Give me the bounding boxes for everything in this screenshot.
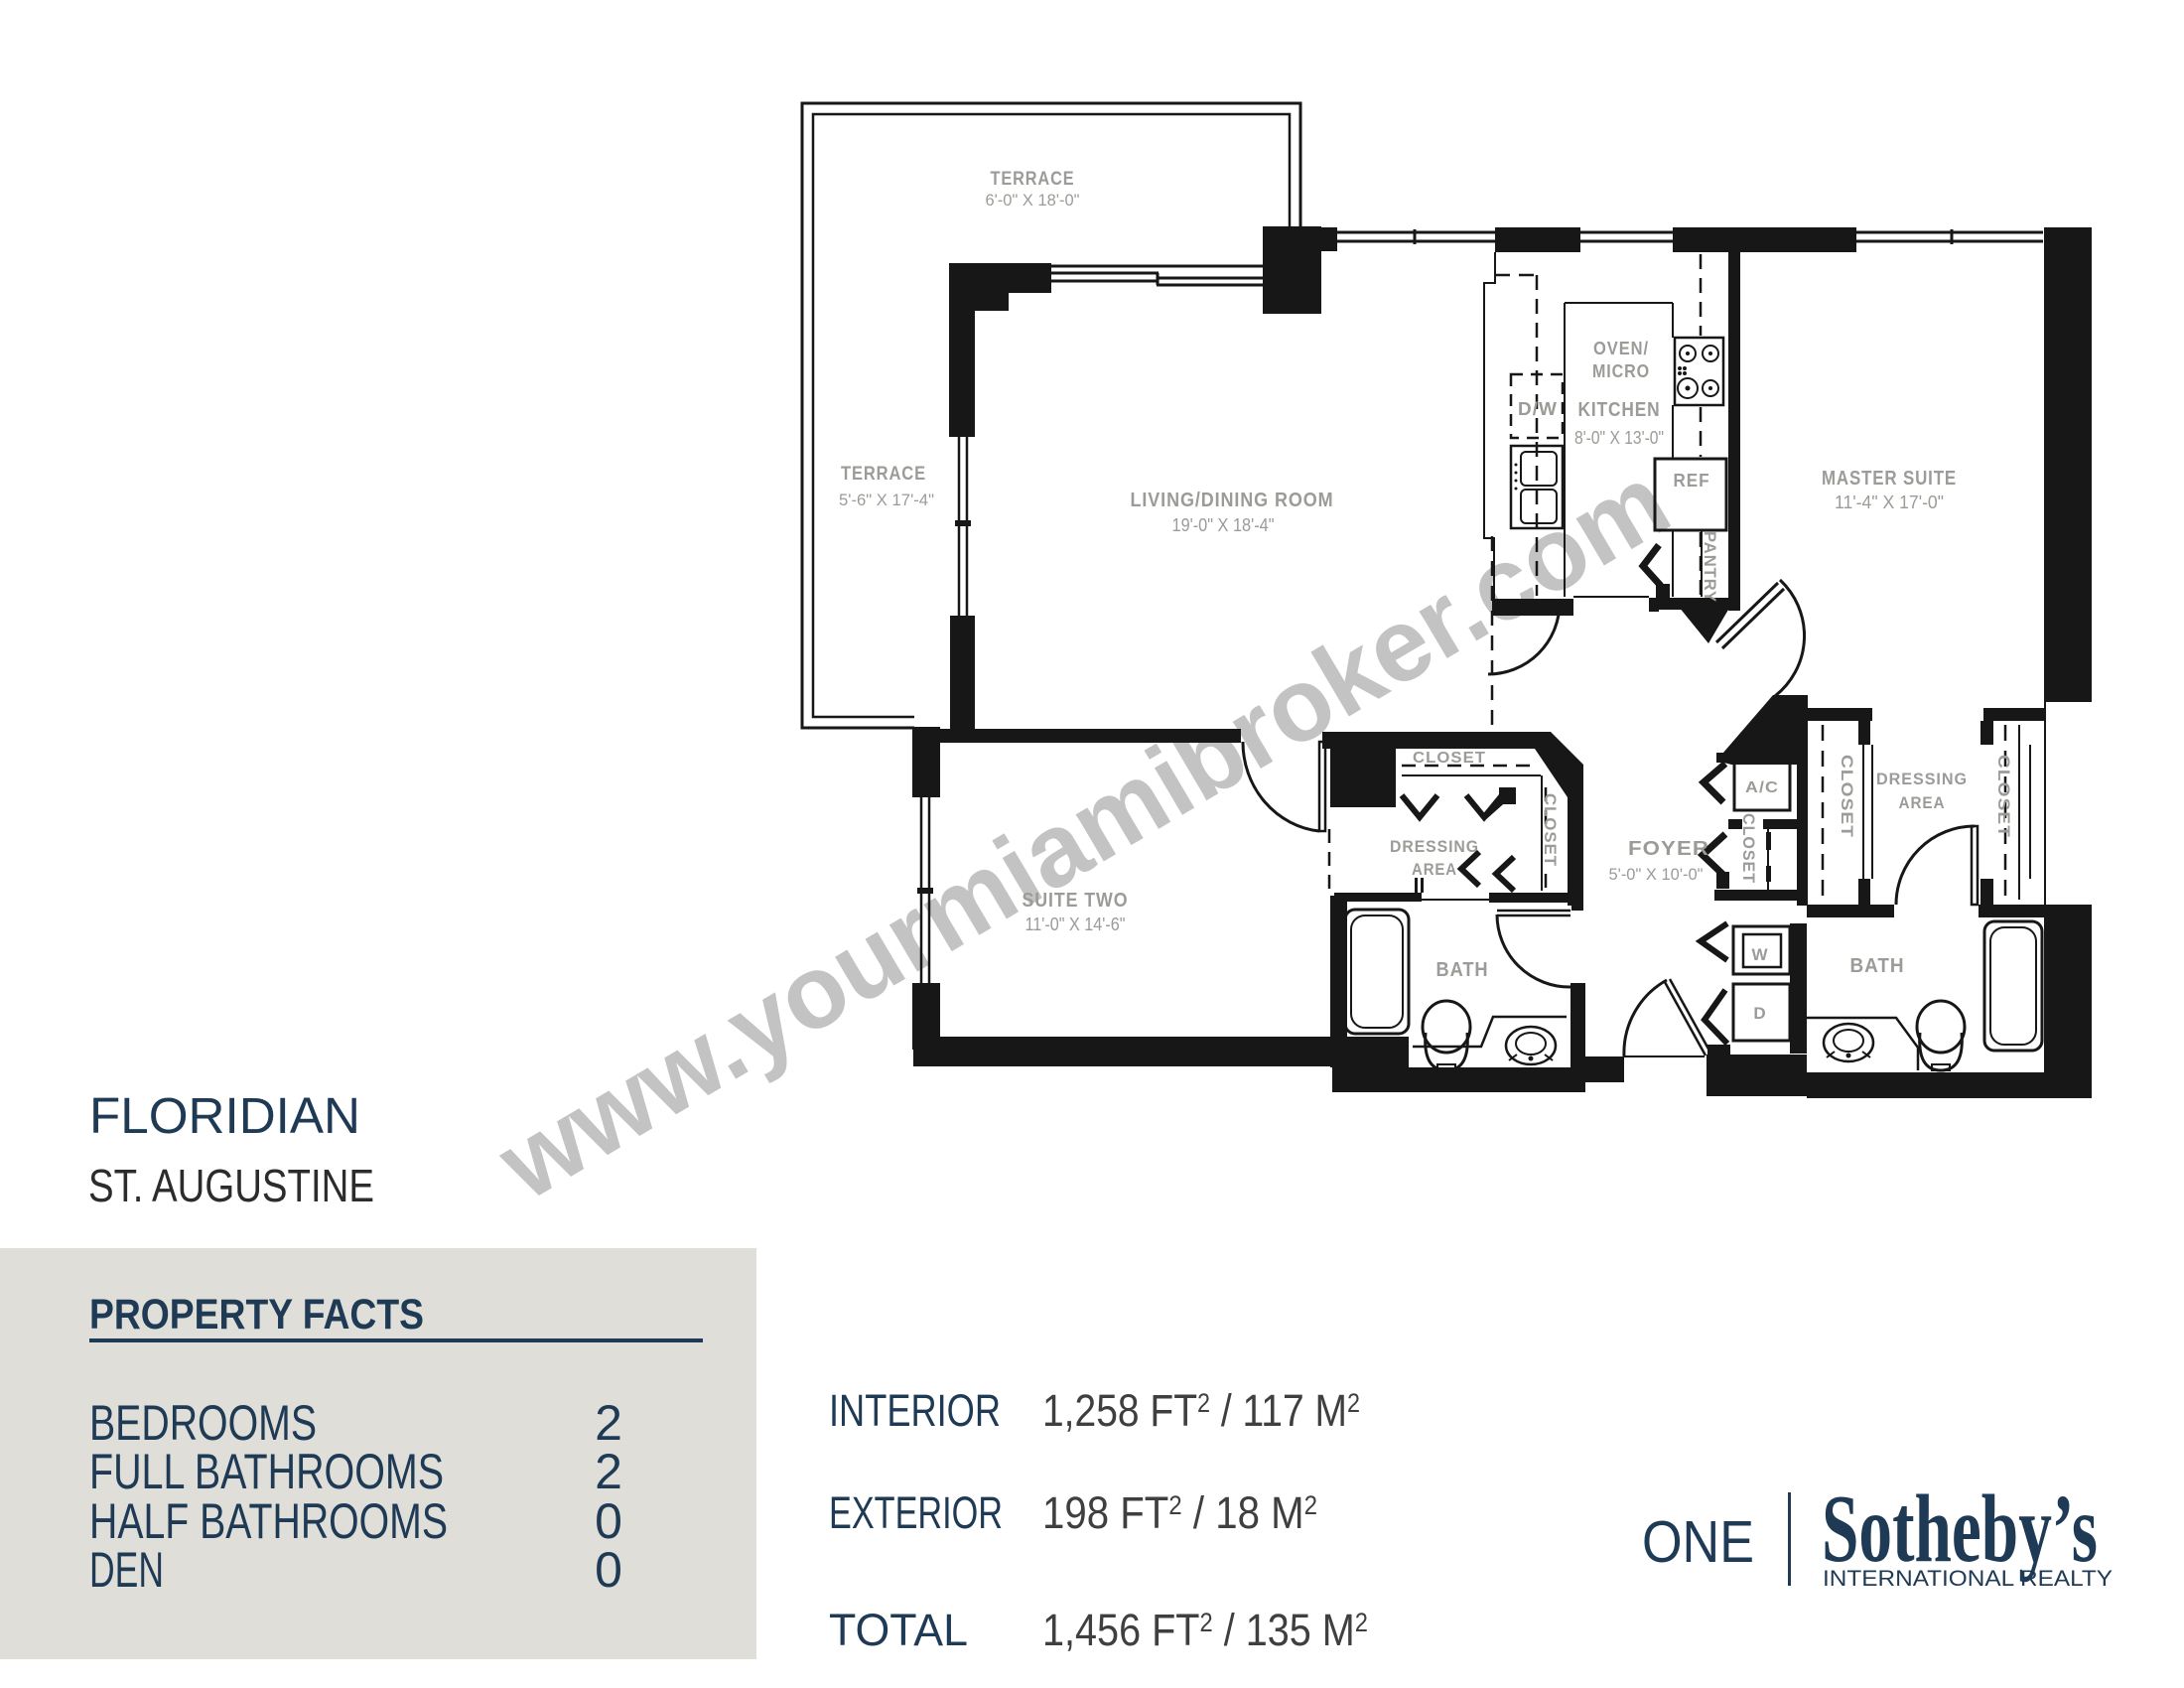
svg-text:TERRACE: TERRACE: [991, 169, 1075, 190]
svg-text:11'-0" X 14'-6": 11'-0" X 14'-6": [1025, 914, 1126, 934]
svg-text:CLOSET: CLOSET: [1994, 755, 2013, 838]
svg-text:0: 0: [595, 1493, 622, 1549]
svg-text:0: 0: [595, 1542, 622, 1598]
svg-text:BATH: BATH: [1436, 959, 1489, 981]
svg-text:DEN: DEN: [89, 1542, 164, 1598]
svg-text:2: 2: [595, 1444, 622, 1499]
svg-text:MICRO: MICRO: [1592, 361, 1650, 381]
svg-text:DRESSING: DRESSING: [1390, 837, 1479, 856]
svg-text:SUITE TWO: SUITE TWO: [1023, 890, 1129, 912]
svg-text:TERRACE: TERRACE: [841, 464, 926, 485]
svg-text:KITCHEN: KITCHEN: [1578, 399, 1661, 421]
svg-text:FLORIDIAN: FLORIDIAN: [89, 1087, 360, 1144]
svg-text:2: 2: [595, 1395, 622, 1451]
svg-text:LIVING/DINING ROOM: LIVING/DINING ROOM: [1131, 490, 1334, 511]
svg-text:MASTER SUITE: MASTER SUITE: [1822, 468, 1957, 490]
svg-text:8'-0" X 13'-0": 8'-0" X 13'-0": [1574, 428, 1664, 448]
svg-text:INTERNATIONAL REALTY: INTERNATIONAL REALTY: [1823, 1566, 2113, 1591]
svg-text:PROPERTY FACTS: PROPERTY FACTS: [89, 1291, 424, 1338]
svg-text:11'-4" X 17'-0": 11'-4" X 17'-0": [1835, 492, 1944, 512]
svg-text:5'-0" X 10'-0": 5'-0" X 10'-0": [1609, 865, 1704, 884]
svg-text:D/W: D/W: [1518, 399, 1558, 419]
svg-text:REF: REF: [1674, 471, 1710, 491]
svg-text:CLOSET: CLOSET: [1838, 755, 1856, 838]
svg-text:CLOSET: CLOSET: [1739, 813, 1758, 884]
svg-text:ONE: ONE: [1642, 1509, 1754, 1575]
svg-text:TOTAL: TOTAL: [829, 1605, 968, 1655]
svg-text:OVEN/: OVEN/: [1593, 339, 1649, 358]
svg-text:5'-6" X 17'-4": 5'-6" X 17'-4": [839, 491, 934, 509]
svg-text:AREA: AREA: [1899, 793, 1946, 812]
svg-text:FOYER: FOYER: [1628, 838, 1709, 860]
svg-text:DRESSING: DRESSING: [1876, 770, 1968, 788]
svg-text:FULL BATHROOMS: FULL BATHROOMS: [89, 1444, 444, 1499]
svg-text:HALF BATHROOMS: HALF BATHROOMS: [89, 1493, 448, 1549]
svg-text:PANTRY: PANTRY: [1701, 531, 1719, 603]
svg-text:EXTERIOR: EXTERIOR: [829, 1487, 1003, 1538]
svg-text:6'-0" X 18'-0": 6'-0" X 18'-0": [986, 191, 1080, 210]
svg-text:AREA: AREA: [1412, 860, 1457, 879]
svg-text:ST. AUGUSTINE: ST. AUGUSTINE: [88, 1160, 374, 1211]
svg-text:BATH: BATH: [1850, 955, 1905, 977]
svg-text:INTERIOR: INTERIOR: [829, 1385, 1001, 1436]
svg-text:A/C: A/C: [1745, 779, 1779, 796]
svg-text:19'-0" X 18'-4": 19'-0" X 18'-4": [1172, 515, 1275, 535]
svg-text:CLOSET: CLOSET: [1541, 793, 1560, 867]
svg-text:BEDROOMS: BEDROOMS: [89, 1395, 317, 1451]
svg-text:CLOSET: CLOSET: [1413, 750, 1486, 767]
svg-text:D: D: [1753, 1004, 1766, 1023]
svg-text:W: W: [1751, 945, 1768, 964]
